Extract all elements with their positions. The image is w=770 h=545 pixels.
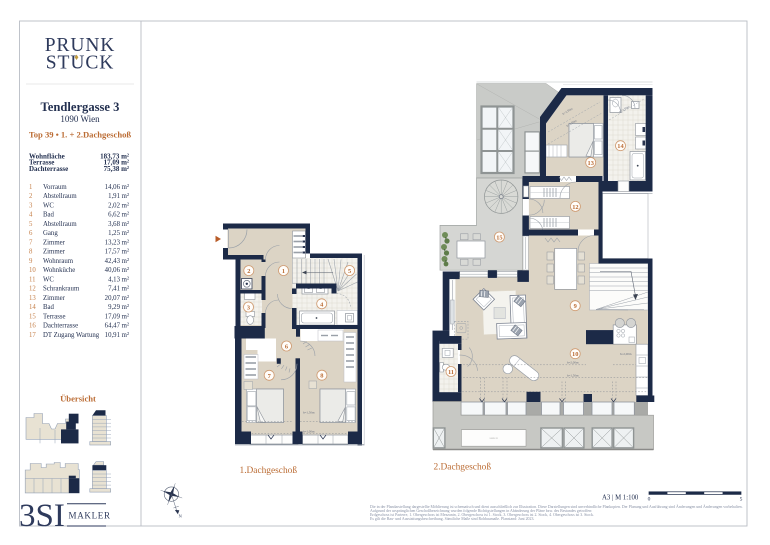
svg-text:17: 17	[29, 332, 36, 339]
svg-text:DT Zugang Wartung: DT Zugang Wartung	[43, 332, 100, 339]
svg-text:Abstellraum: Abstellraum	[43, 221, 77, 228]
svg-text:2.Dachgeschoß: 2.Dachgeschoß	[434, 462, 492, 473]
svg-text:12: 12	[572, 204, 578, 211]
svg-text:12: 12	[29, 286, 36, 293]
svg-text:Top 39 • 1. + 2.Dachgeschoß: Top 39 • 1. + 2.Dachgeschoß	[29, 130, 132, 140]
svg-text:15: 15	[496, 235, 502, 242]
svg-text:Dachterrasse: Dachterrasse	[29, 165, 68, 173]
svg-text:1090 Wien: 1090 Wien	[60, 114, 100, 124]
svg-text:6: 6	[29, 230, 33, 237]
svg-text:13: 13	[29, 295, 36, 302]
svg-text:13: 13	[588, 160, 594, 167]
svg-text:10,91 m²: 10,91 m²	[105, 332, 129, 339]
svg-text:5: 5	[29, 221, 33, 228]
svg-text:4,13 m²: 4,13 m²	[108, 277, 129, 284]
svg-text:7,41 m²: 7,41 m²	[108, 286, 129, 293]
svg-text:14: 14	[29, 304, 36, 311]
svg-text:10: 10	[572, 351, 578, 358]
svg-text:1: 1	[29, 184, 32, 191]
svg-text:Abstellraum: Abstellraum	[43, 193, 77, 200]
svg-text:Terrasse: Terrasse	[43, 314, 66, 321]
svg-text:Vorraum: Vorraum	[43, 184, 67, 191]
svg-text:16: 16	[29, 323, 36, 330]
svg-text:8: 8	[320, 373, 323, 380]
svg-text:2,02 m²: 2,02 m²	[108, 203, 129, 210]
svg-text:20,07 m²: 20,07 m²	[105, 295, 129, 302]
svg-text:Wohnküche: Wohnküche	[43, 267, 75, 274]
svg-text:8: 8	[29, 249, 33, 256]
svg-text:3,68 m²: 3,68 m²	[108, 221, 129, 228]
svg-text:9,29 m²: 9,29 m²	[108, 304, 129, 311]
svg-text:2: 2	[247, 268, 250, 275]
svg-text:Tendlergasse 3: Tendlergasse 3	[41, 100, 120, 114]
svg-text:13,23 m²: 13,23 m²	[105, 240, 129, 247]
svg-text:Gang: Gang	[43, 230, 58, 237]
svg-text:17,09 m²: 17,09 m²	[105, 314, 129, 321]
svg-text:Bad: Bad	[43, 212, 55, 219]
svg-text:11: 11	[448, 369, 454, 376]
svg-text:1: 1	[282, 268, 285, 275]
svg-text:7: 7	[29, 240, 33, 247]
svg-text:9: 9	[574, 303, 577, 310]
svg-text:10: 10	[29, 267, 36, 274]
svg-text:Zimmer: Zimmer	[43, 240, 66, 247]
svg-text:17,57 m²: 17,57 m²	[105, 249, 129, 256]
svg-text:40,06 m²: 40,06 m²	[105, 267, 129, 274]
svg-text:11: 11	[29, 277, 36, 284]
svg-text:6,62 m²: 6,62 m²	[108, 212, 129, 219]
svg-text:5: 5	[740, 497, 743, 503]
svg-text:Übersicht: Übersicht	[60, 394, 96, 404]
svg-text:2: 2	[29, 193, 33, 200]
svg-text:MAKLER: MAKLER	[69, 511, 111, 521]
svg-text:1,91 m²: 1,91 m²	[108, 193, 129, 200]
svg-text:5: 5	[348, 268, 351, 275]
svg-text:14,06 m²: 14,06 m²	[105, 184, 129, 191]
svg-text:0: 0	[648, 497, 651, 503]
svg-text:75,38 m²: 75,38 m²	[104, 165, 129, 173]
svg-text:LWB 19: LWB 19	[490, 437, 499, 440]
svg-text:Es gilt die Bau- und Ausstattu: Es gilt die Bau- und Ausstattungsbeschre…	[370, 517, 534, 521]
svg-text:Wohnraum: Wohnraum	[43, 258, 74, 265]
svg-text:15: 15	[29, 314, 36, 321]
svg-text:1.Dachgeschoß: 1.Dachgeschoß	[240, 465, 298, 476]
svg-text:4: 4	[29, 212, 33, 219]
svg-text:Bad: Bad	[43, 304, 55, 311]
svg-text:3: 3	[29, 203, 33, 210]
svg-text:42,43 m²: 42,43 m²	[105, 258, 129, 265]
svg-text:Zimmer: Zimmer	[43, 295, 66, 302]
svg-text:9: 9	[29, 258, 33, 265]
svg-text:A3 | M 1:100: A3 | M 1:100	[602, 494, 639, 501]
svg-text:STUCK: STUCK	[46, 53, 114, 74]
svg-text:WC: WC	[43, 277, 54, 284]
svg-text:Dachterrasse: Dachterrasse	[43, 323, 78, 330]
svg-text:64,47 m²: 64,47 m²	[105, 323, 129, 330]
svg-text:14: 14	[617, 143, 624, 150]
svg-text:3: 3	[247, 305, 250, 312]
svg-text:WC: WC	[43, 203, 54, 210]
svg-text:1,25 m²: 1,25 m²	[108, 230, 129, 237]
svg-text:Zimmer: Zimmer	[43, 249, 66, 256]
svg-text:Schrankraum: Schrankraum	[43, 286, 80, 293]
svg-text:3SI: 3SI	[19, 498, 65, 534]
